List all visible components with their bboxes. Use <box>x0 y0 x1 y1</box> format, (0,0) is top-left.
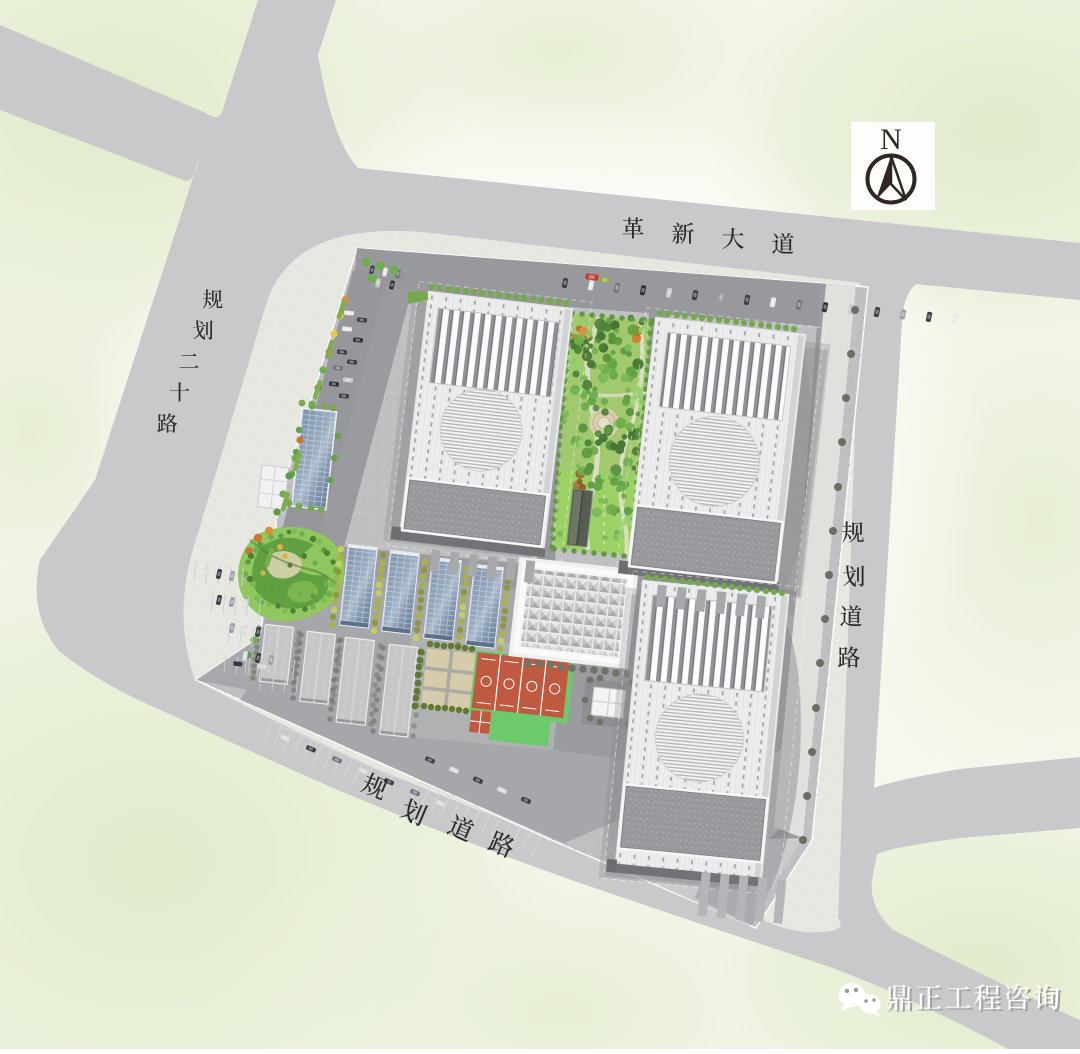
svg-text:N: N <box>880 123 902 156</box>
